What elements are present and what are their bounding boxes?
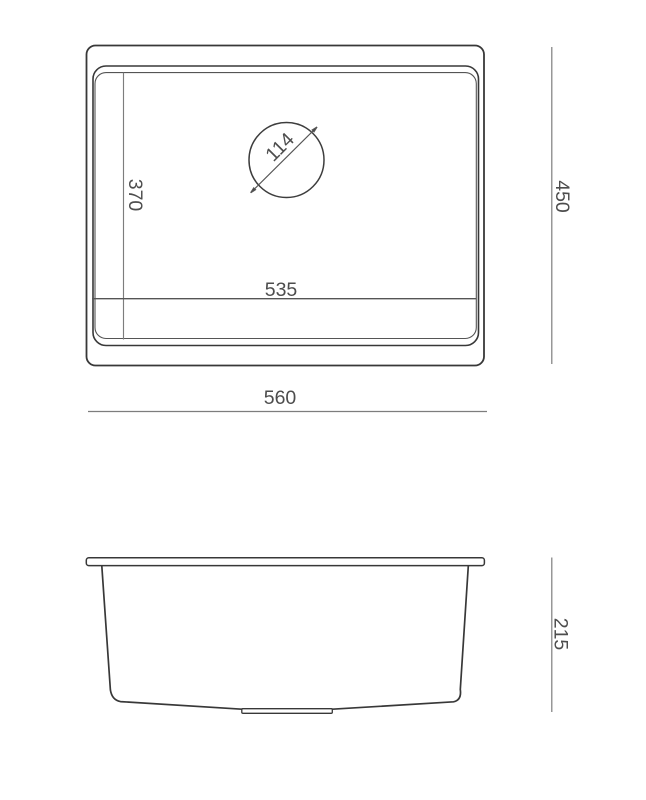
svg-text:535: 535: [265, 279, 298, 301]
svg-text:215: 215: [550, 618, 572, 651]
svg-text:560: 560: [264, 387, 297, 409]
svg-text:450: 450: [551, 180, 573, 213]
svg-text:370: 370: [124, 179, 146, 212]
